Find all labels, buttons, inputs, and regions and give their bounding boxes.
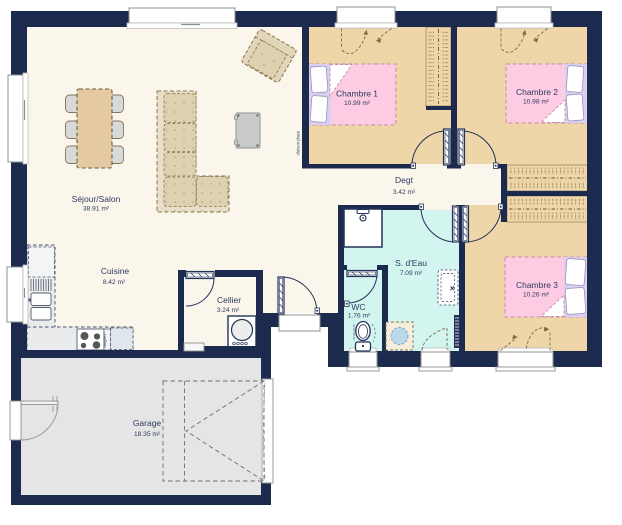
- svg-text:S. d'Eau: S. d'Eau: [395, 258, 427, 268]
- svg-text:3.24 m²: 3.24 m²: [217, 307, 240, 314]
- svg-text:10.99 m²: 10.99 m²: [344, 100, 371, 107]
- svg-text:10.98 m²: 10.98 m²: [523, 99, 550, 106]
- svg-text:18.35 m²: 18.35 m²: [134, 431, 161, 438]
- svg-text:38.91 m²: 38.91 m²: [83, 206, 110, 213]
- svg-text:WC: WC: [351, 302, 365, 312]
- svg-text:Chambre 2: Chambre 2: [516, 87, 558, 97]
- svg-text:Chambre 1: Chambre 1: [336, 89, 378, 99]
- svg-text:10.26 m²: 10.26 m²: [523, 292, 550, 299]
- svg-text:rangemt: rangemt: [103, 333, 107, 348]
- svg-text:Chambre 3: Chambre 3: [516, 280, 558, 290]
- svg-text:Garage: Garage: [133, 418, 162, 428]
- svg-text:7.09 m²: 7.09 m²: [400, 270, 423, 277]
- svg-text:8.42 m²: 8.42 m²: [103, 279, 126, 286]
- svg-text:Séjour/Salon: Séjour/Salon: [72, 194, 121, 204]
- svg-text:Cuisine: Cuisine: [101, 266, 130, 276]
- svg-text:3.42 m²: 3.42 m²: [393, 189, 416, 196]
- svg-text:cloison placo: cloison placo: [296, 130, 301, 155]
- svg-text:Cellier: Cellier: [217, 295, 241, 305]
- svg-text:1.76 m²: 1.76 m²: [348, 313, 371, 320]
- svg-text:Degt: Degt: [395, 175, 414, 185]
